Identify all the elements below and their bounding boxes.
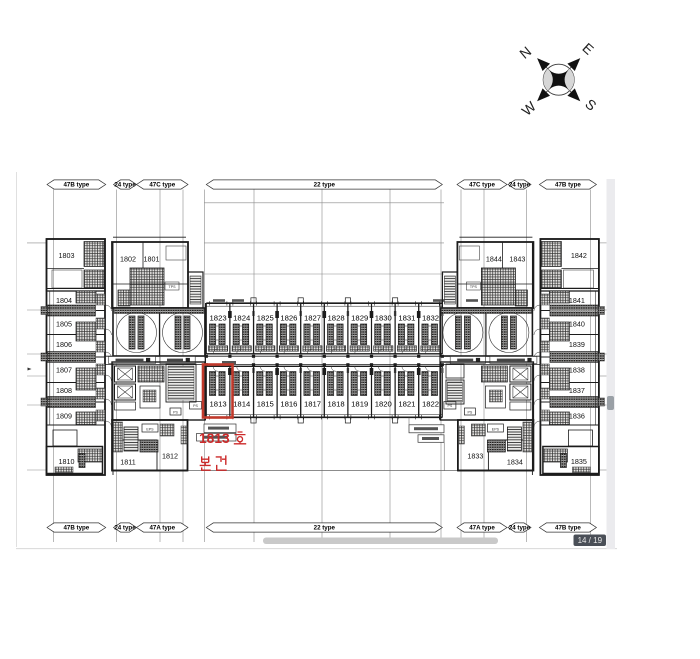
svg-text:22 type: 22 type: [314, 525, 336, 532]
svg-text:47C type: 47C type: [469, 182, 495, 189]
svg-text:1840: 1840: [569, 320, 585, 329]
svg-text:EPS: EPS: [492, 428, 500, 432]
svg-text:PS: PS: [193, 404, 198, 408]
svg-text:1803: 1803: [59, 251, 75, 260]
svg-text:1815: 1815: [257, 400, 274, 409]
svg-text:47A type: 47A type: [469, 525, 495, 532]
svg-text:1835: 1835: [571, 457, 587, 466]
svg-text:47B type: 47B type: [63, 182, 89, 189]
svg-text:1820: 1820: [375, 400, 392, 409]
svg-text:1823: 1823: [210, 313, 227, 322]
svg-text:1830: 1830: [375, 313, 392, 322]
svg-text:1841: 1841: [569, 296, 585, 305]
svg-text:1801: 1801: [144, 255, 160, 264]
svg-text:1829: 1829: [351, 313, 368, 322]
svg-text:1842: 1842: [571, 251, 587, 260]
svg-text:1813: 1813: [210, 400, 227, 409]
svg-text:14 / 19: 14 / 19: [578, 536, 603, 545]
svg-text:24 type: 24 type: [509, 182, 531, 189]
svg-text:1821: 1821: [398, 400, 415, 409]
svg-text:1831: 1831: [398, 313, 415, 322]
svg-text:24 type: 24 type: [114, 182, 136, 189]
svg-text:1838: 1838: [569, 366, 585, 375]
svg-text:1839: 1839: [569, 340, 585, 349]
svg-text:1834: 1834: [507, 458, 523, 467]
svg-text:1810: 1810: [59, 457, 75, 466]
svg-text:PS: PS: [468, 410, 473, 414]
svg-text:1826: 1826: [280, 313, 297, 322]
svg-text:1813: 1813: [199, 431, 230, 446]
svg-text:1809: 1809: [56, 412, 72, 421]
svg-text:1822: 1822: [422, 400, 439, 409]
svg-text:24 type: 24 type: [114, 525, 136, 532]
svg-text:47B type: 47B type: [63, 525, 89, 532]
svg-text:1844: 1844: [486, 255, 502, 264]
svg-text:1808: 1808: [56, 386, 72, 395]
svg-text:1802: 1802: [120, 255, 136, 264]
svg-text:1824: 1824: [233, 313, 251, 322]
svg-text:1843: 1843: [509, 255, 525, 264]
svg-text:1832: 1832: [422, 313, 439, 322]
svg-text:1837: 1837: [569, 386, 585, 395]
svg-text:1825: 1825: [257, 313, 274, 322]
svg-text:1817: 1817: [304, 400, 321, 409]
svg-text:47B type: 47B type: [555, 182, 581, 189]
svg-text:1811: 1811: [120, 458, 135, 467]
svg-text:TPS: TPS: [470, 285, 478, 289]
svg-text:1828: 1828: [328, 313, 345, 322]
svg-text:TPS: TPS: [169, 285, 177, 289]
svg-text:1814: 1814: [233, 400, 251, 409]
svg-text:PS: PS: [448, 404, 453, 408]
svg-text:47B type: 47B type: [555, 525, 581, 532]
svg-text:1807: 1807: [56, 366, 72, 375]
svg-text:1816: 1816: [280, 400, 297, 409]
svg-text:1806: 1806: [56, 340, 72, 349]
svg-text:47C type: 47C type: [149, 182, 175, 189]
svg-text:1833: 1833: [467, 452, 483, 461]
svg-text:1804: 1804: [56, 296, 72, 305]
svg-text:1818: 1818: [328, 400, 345, 409]
svg-text:24 type: 24 type: [509, 525, 531, 532]
svg-text:1827: 1827: [304, 313, 321, 322]
svg-text:1805: 1805: [56, 320, 72, 329]
svg-text:PS: PS: [173, 410, 178, 414]
svg-text:22 type: 22 type: [314, 182, 336, 189]
svg-text:1819: 1819: [351, 400, 368, 409]
svg-text:47A type: 47A type: [149, 525, 175, 532]
svg-text:1812: 1812: [162, 452, 178, 461]
svg-text:EPS: EPS: [146, 428, 154, 432]
svg-text:1836: 1836: [569, 412, 585, 421]
